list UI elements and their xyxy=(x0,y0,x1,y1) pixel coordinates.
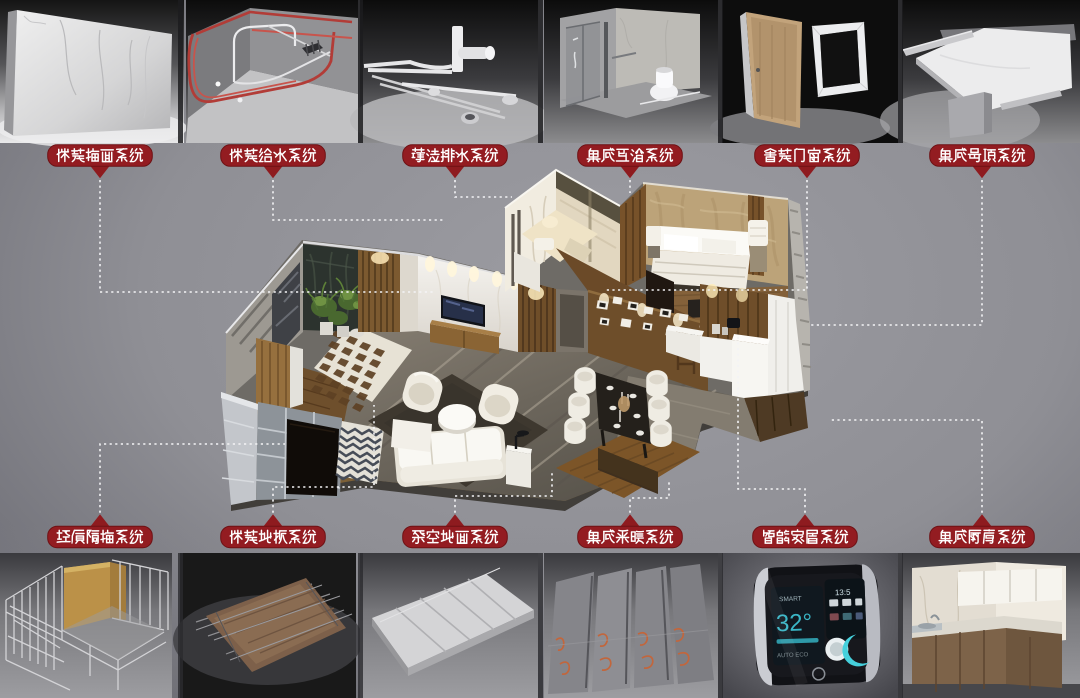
svg-text:13:5: 13:5 xyxy=(835,588,851,598)
svg-text:SMART: SMART xyxy=(779,595,802,603)
